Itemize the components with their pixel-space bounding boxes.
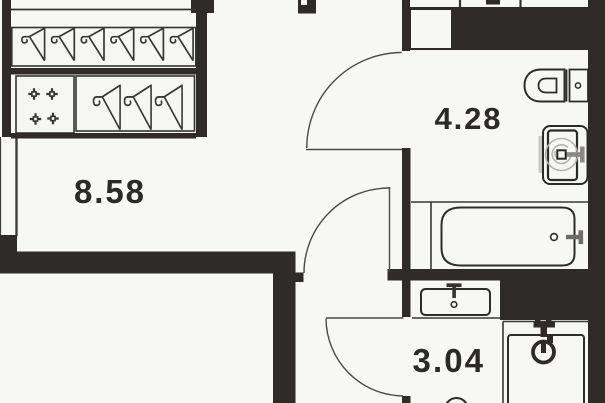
svg-text:4.28: 4.28	[435, 101, 503, 136]
svg-text:8.58: 8.58	[74, 173, 146, 210]
svg-text:3.04: 3.04	[413, 342, 486, 379]
